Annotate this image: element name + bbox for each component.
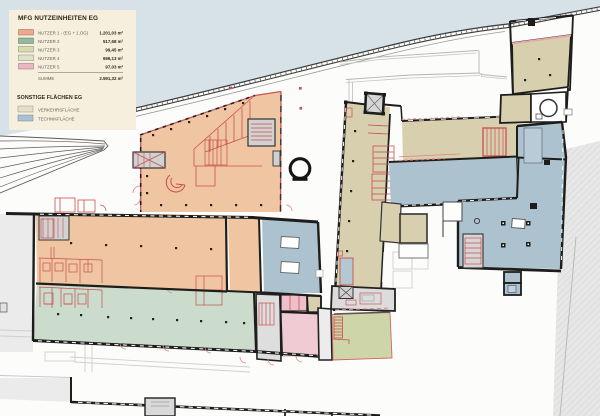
svg-text:SUMME: SUMME (38, 76, 54, 81)
svg-text:2.591,32 m²: 2.591,32 m² (99, 76, 123, 81)
svg-text:VERKEHRSFLÄCHE: VERKEHRSFLÄCHE (38, 108, 80, 113)
svg-text:NUTZER 1 - (EG + 1.OG): NUTZER 1 - (EG + 1.OG) (38, 30, 89, 35)
svg-text:517,68 m²: 517,68 m² (103, 39, 124, 44)
svg-text:TECHNIKFLÄCHE: TECHNIKFLÄCHE (38, 117, 75, 122)
svg-text:SONSTIGE FLÄCHEN EG: SONSTIGE FLÄCHEN EG (17, 94, 82, 101)
svg-text:99,45 m²: 99,45 m² (105, 47, 123, 52)
svg-text:NUTZER 4: NUTZER 4 (38, 56, 60, 61)
svg-text:MFG NUTZEINHEITEN EG: MFG NUTZEINHEITEN EG (18, 15, 98, 22)
svg-text:NUTZER 2: NUTZER 2 (38, 39, 60, 44)
svg-text:NUTZER 3: NUTZER 3 (38, 47, 60, 52)
svg-text:1.201,03 m²: 1.201,03 m² (99, 30, 123, 35)
svg-text:696,13 m²: 696,13 m² (103, 56, 124, 61)
svg-text:97,03 m²: 97,03 m² (105, 64, 123, 69)
svg-text:NUTZER 5: NUTZER 5 (38, 64, 60, 69)
